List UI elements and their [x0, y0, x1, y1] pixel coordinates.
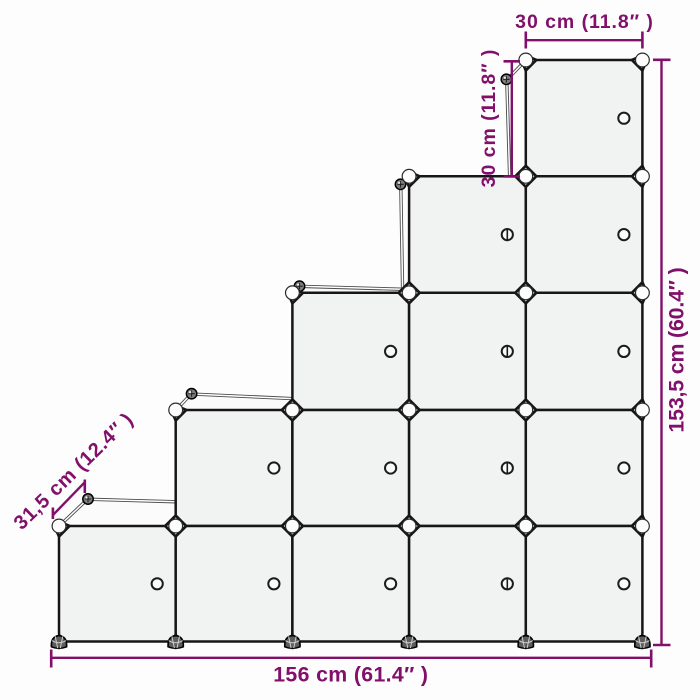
svg-text:30 cm (11.8″ ): 30 cm (11.8″ ) [515, 11, 654, 33]
svg-text:30 cm (11.8″ ): 30 cm (11.8″ ) [478, 49, 500, 188]
svg-text:156 cm (61.4″ ): 156 cm (61.4″ ) [273, 663, 428, 687]
svg-text:153,5 cm (60.4″ ): 153,5 cm (60.4″ ) [665, 267, 689, 432]
